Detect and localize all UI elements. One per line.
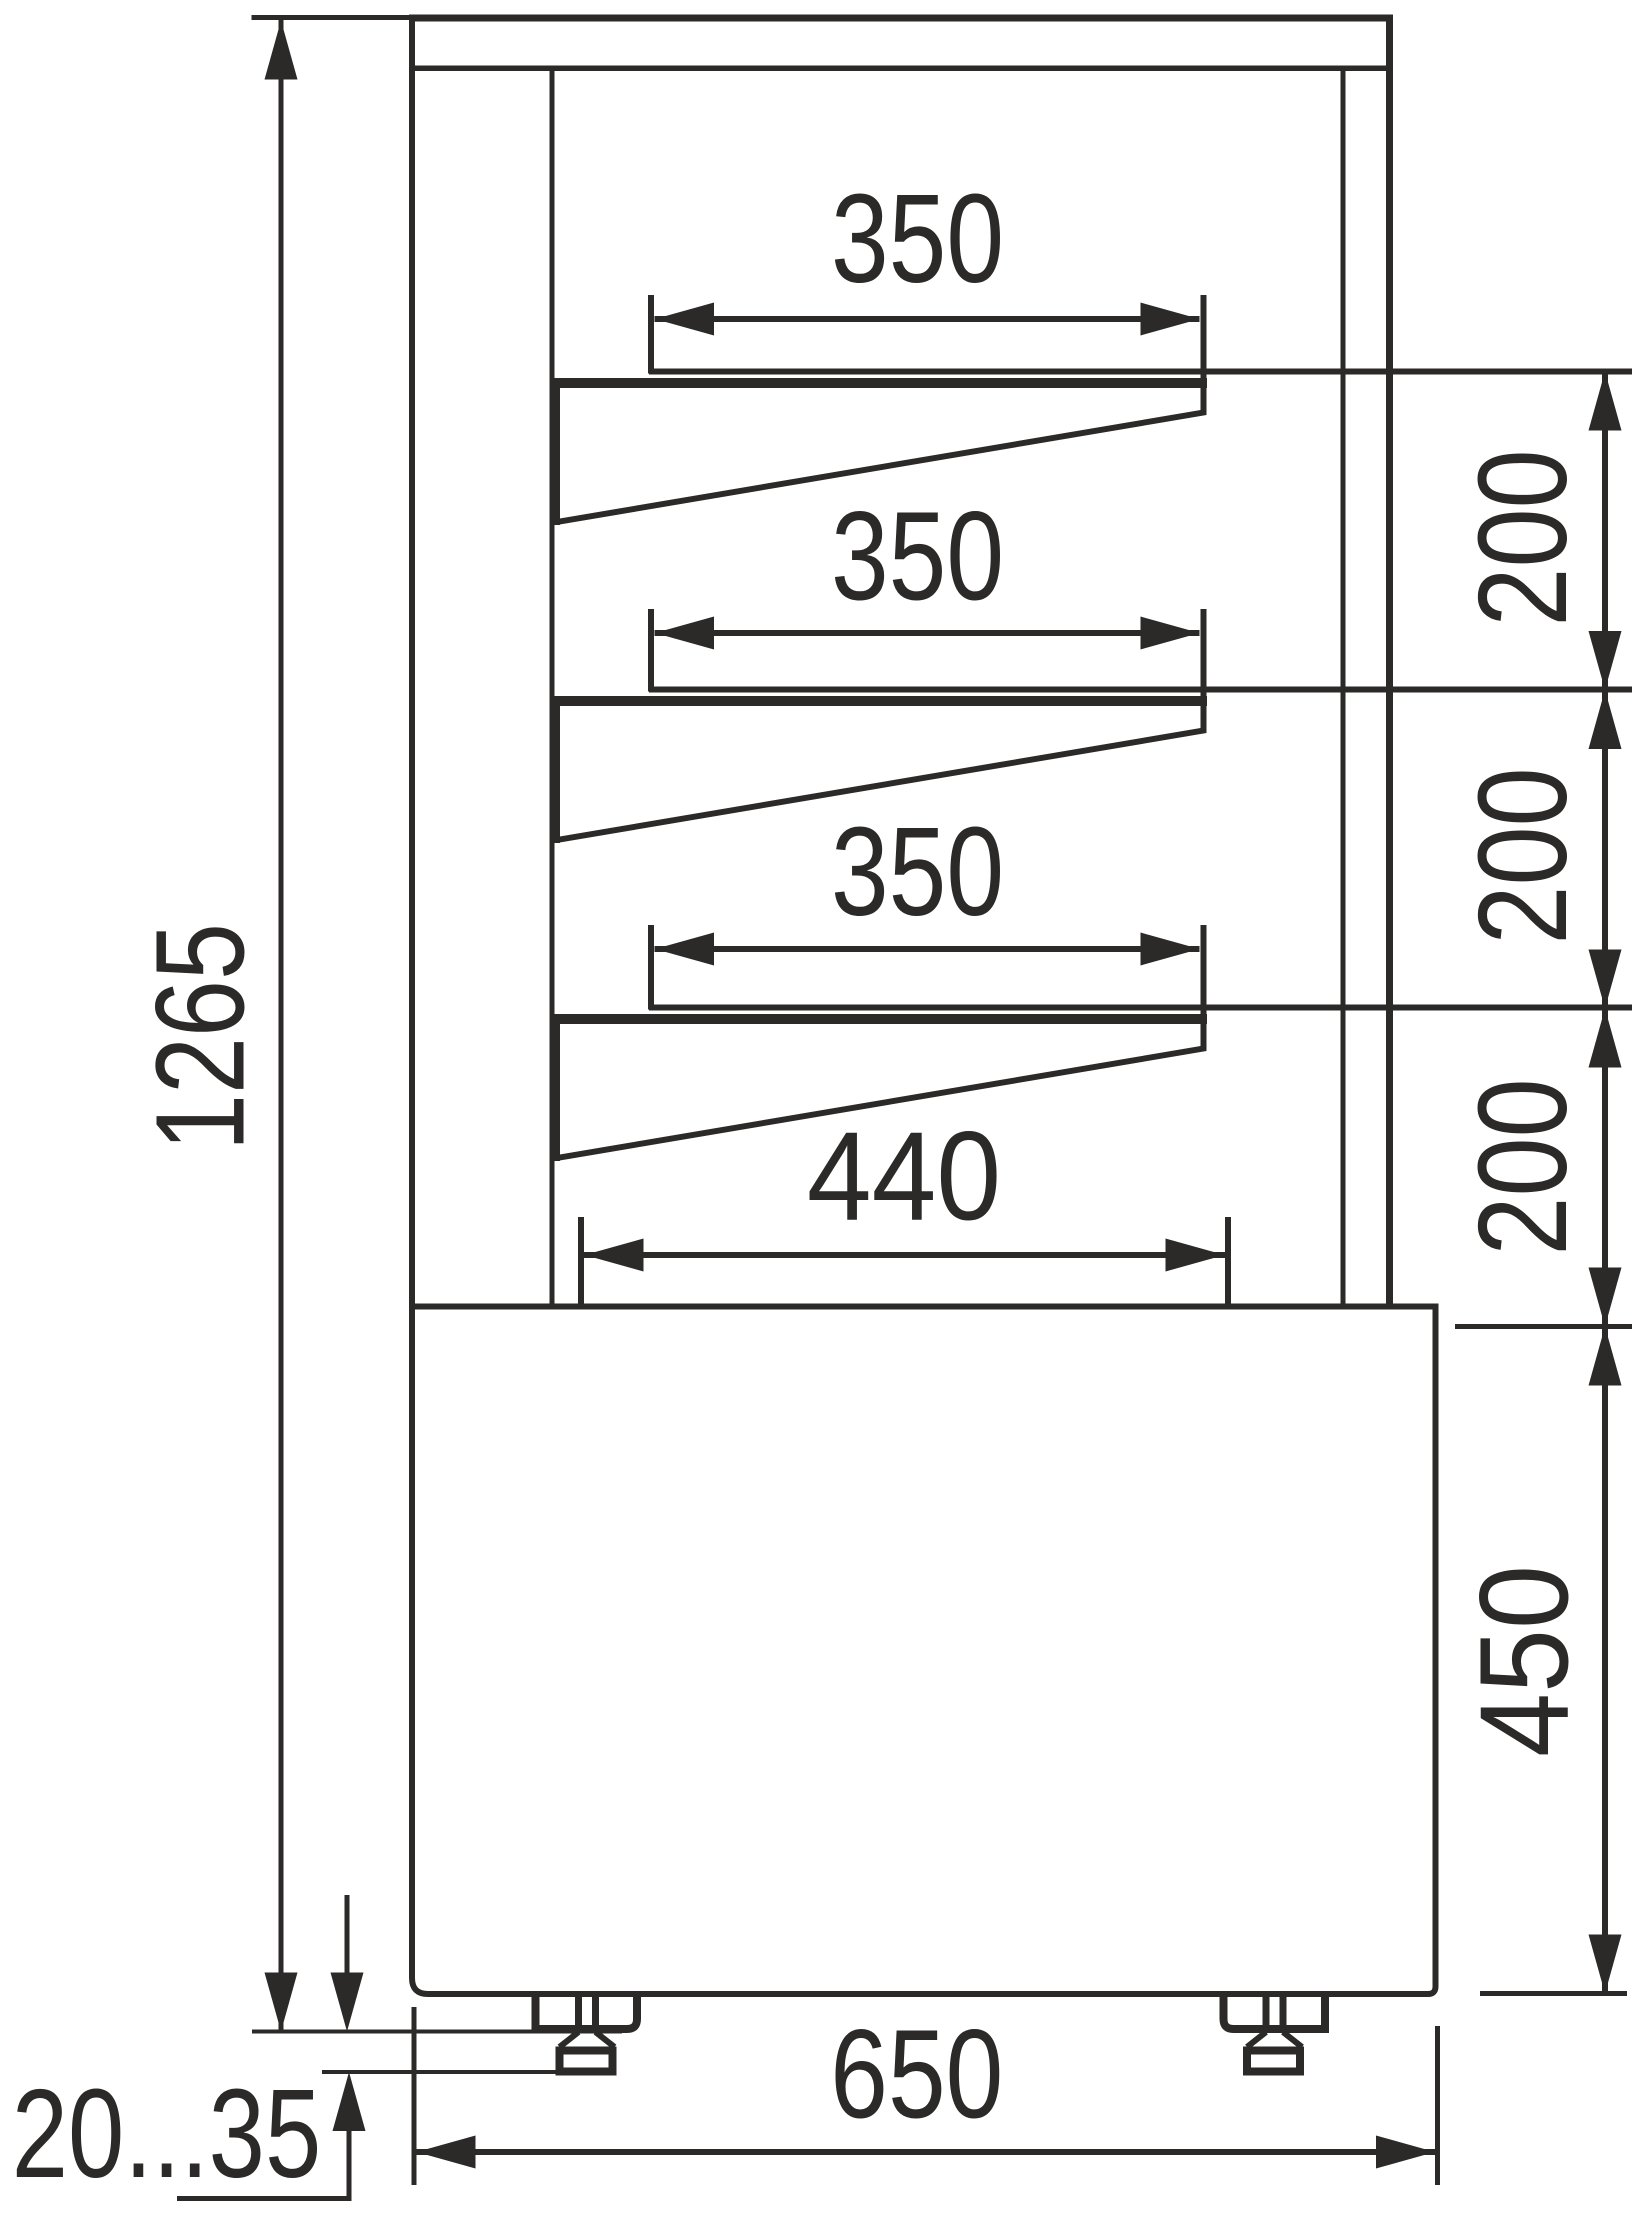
svg-text:200: 200 — [1451, 1078, 1593, 1255]
svg-text:650: 650 — [830, 2003, 1003, 2145]
svg-text:200: 200 — [1451, 767, 1593, 944]
svg-text:1265: 1265 — [130, 923, 271, 1151]
svg-text:200: 200 — [1451, 449, 1593, 626]
svg-text:350: 350 — [831, 167, 1004, 309]
svg-text:350: 350 — [831, 800, 1004, 942]
svg-text:440: 440 — [807, 1105, 1001, 1247]
svg-text:450: 450 — [1453, 1565, 1594, 1757]
svg-text:350: 350 — [831, 485, 1004, 627]
svg-text:20...35: 20...35 — [12, 2063, 321, 2204]
